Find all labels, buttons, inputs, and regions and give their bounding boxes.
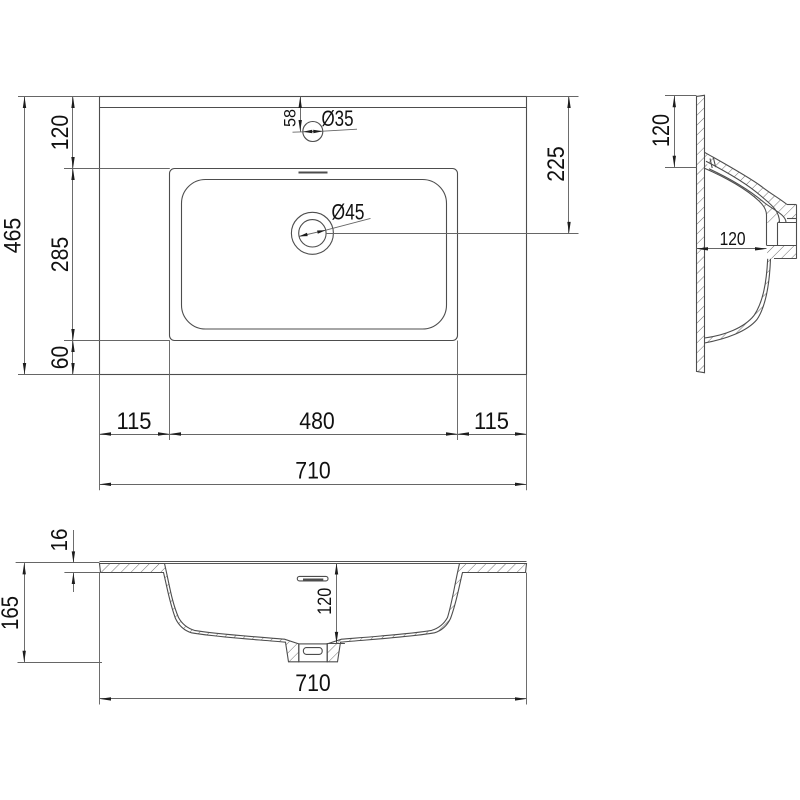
svg-text:120: 120 <box>648 114 675 147</box>
svg-text:Ø45: Ø45 <box>332 200 365 225</box>
svg-text:115: 115 <box>474 408 509 435</box>
svg-text:710: 710 <box>295 458 331 485</box>
svg-text:225: 225 <box>543 146 570 182</box>
svg-text:16: 16 <box>46 529 72 552</box>
svg-text:285: 285 <box>47 237 74 273</box>
svg-text:120: 120 <box>47 115 74 151</box>
svg-text:465: 465 <box>0 218 27 254</box>
svg-text:115: 115 <box>117 408 152 435</box>
svg-text:480: 480 <box>299 408 335 435</box>
svg-text:120: 120 <box>315 588 336 615</box>
svg-text:60: 60 <box>47 346 74 370</box>
svg-text:120: 120 <box>720 229 746 249</box>
svg-text:710: 710 <box>295 670 331 697</box>
svg-text:Ø35: Ø35 <box>322 106 354 131</box>
svg-text:165: 165 <box>0 596 24 630</box>
svg-text:58: 58 <box>280 109 299 127</box>
